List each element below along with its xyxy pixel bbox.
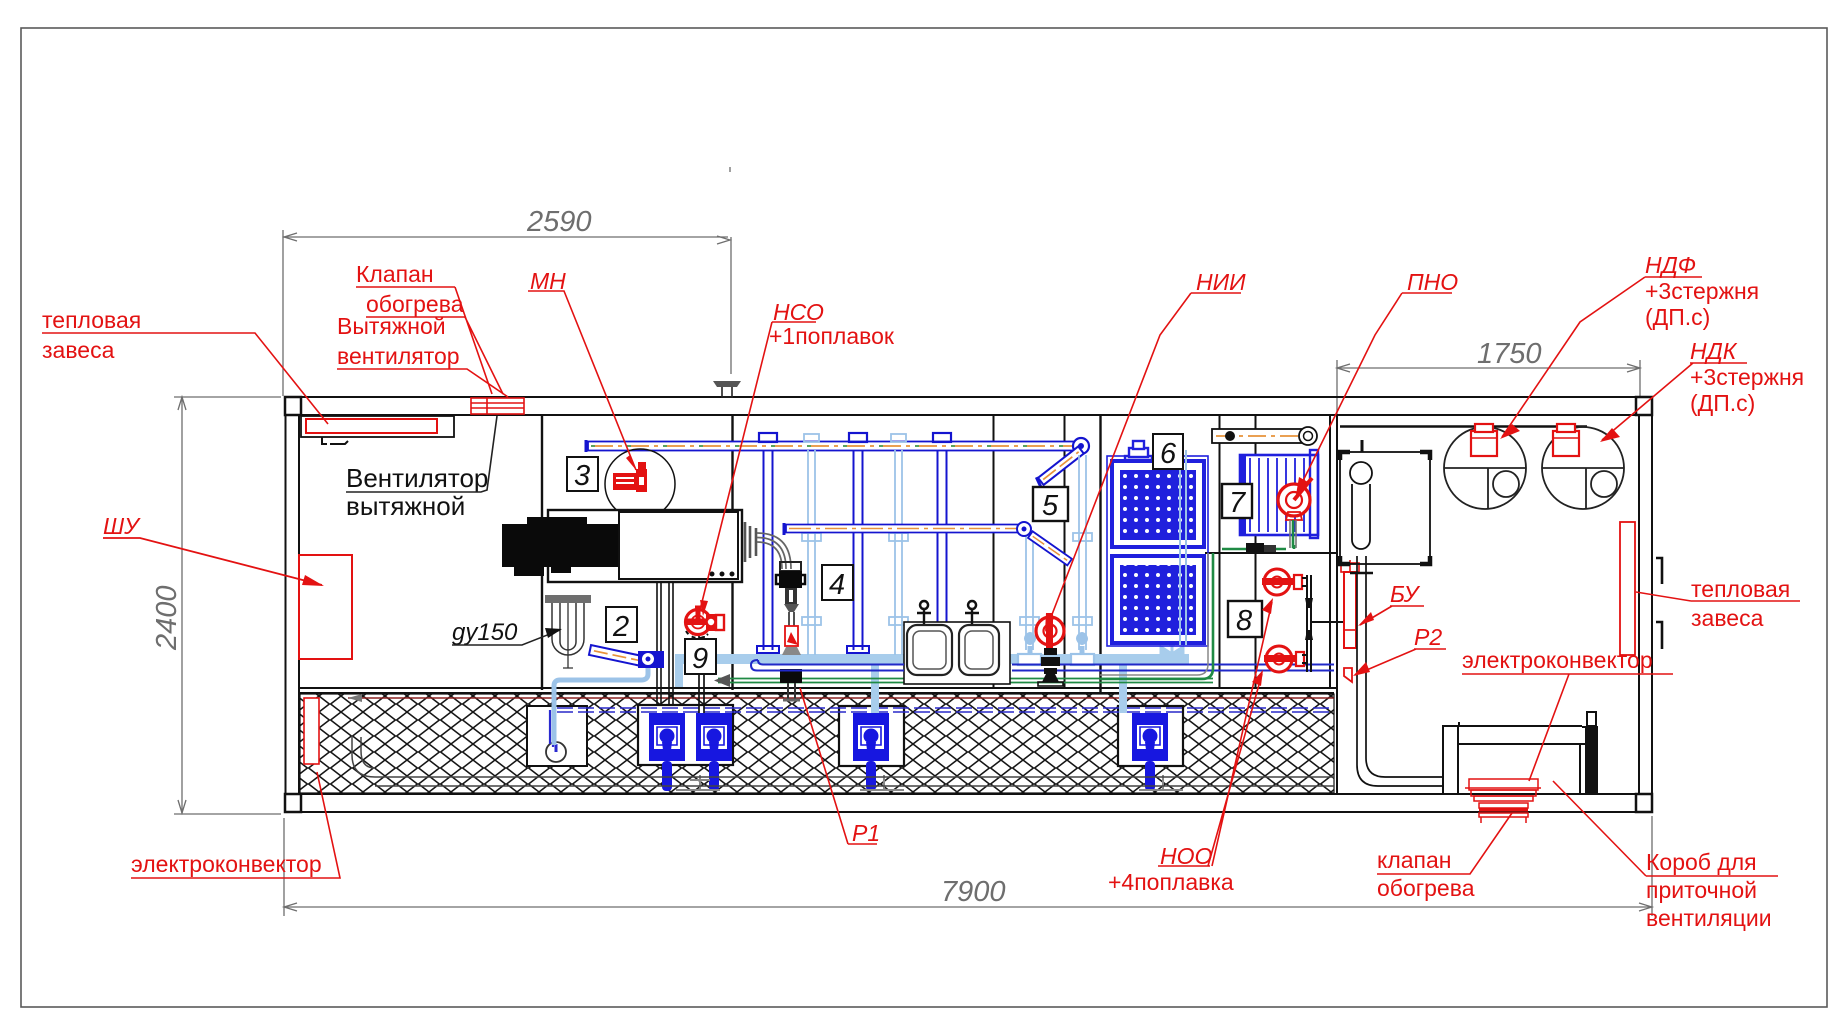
- svg-text:+3стержня: +3стержня: [1690, 364, 1804, 390]
- svg-text:+4поплавка: +4поплавка: [1108, 869, 1234, 895]
- svg-text:завеса: завеса: [42, 337, 115, 363]
- svg-text:приточной: приточной: [1646, 877, 1757, 903]
- svg-text:БУ: БУ: [1390, 581, 1421, 607]
- svg-text:7900: 7900: [941, 876, 1006, 908]
- svg-text:+1поплавок: +1поплавок: [769, 323, 895, 349]
- svg-text:обогрева: обогрева: [1377, 875, 1475, 901]
- svg-text:gy150: gy150: [452, 619, 518, 646]
- svg-text:электроконвектор: электроконвектор: [1462, 647, 1653, 673]
- svg-text:МН: МН: [530, 268, 566, 294]
- svg-text:1750: 1750: [1477, 338, 1542, 370]
- svg-text:9: 9: [692, 643, 708, 675]
- svg-text:5: 5: [1042, 490, 1059, 522]
- svg-text:Вентилятор: Вентилятор: [346, 463, 488, 493]
- svg-text:3: 3: [574, 460, 590, 492]
- svg-text:электроконвектор: электроконвектор: [131, 851, 322, 877]
- svg-text:7: 7: [1229, 487, 1247, 519]
- svg-text:Короб для: Короб для: [1646, 849, 1757, 875]
- svg-text:8: 8: [1236, 605, 1252, 637]
- svg-text:НИИ: НИИ: [1196, 269, 1246, 295]
- svg-text:завеса: завеса: [1691, 605, 1764, 631]
- svg-text:Вытяжной: Вытяжной: [337, 313, 446, 339]
- svg-text:НСО: НСО: [773, 299, 824, 325]
- svg-text:(ДП.с): (ДП.с): [1645, 304, 1710, 330]
- svg-text:6: 6: [1160, 438, 1177, 470]
- svg-text:вентиляции: вентиляции: [1646, 905, 1772, 931]
- svg-text:НОО: НОО: [1160, 843, 1213, 869]
- svg-text:2: 2: [612, 611, 629, 643]
- svg-text:НДФ: НДФ: [1645, 252, 1696, 278]
- svg-text:ШУ: ШУ: [103, 513, 141, 539]
- svg-text:НДК: НДК: [1690, 338, 1738, 364]
- svg-text:клапан: клапан: [1377, 847, 1451, 873]
- svg-text:вытяжной: вытяжной: [346, 491, 465, 521]
- svg-text:тепловая: тепловая: [1691, 576, 1790, 602]
- svg-text:2590: 2590: [526, 206, 592, 238]
- svg-text:Р2: Р2: [1414, 624, 1442, 650]
- svg-text:Клапан: Клапан: [356, 261, 434, 287]
- svg-text:тепловая: тепловая: [42, 307, 141, 333]
- svg-text:4: 4: [829, 569, 845, 601]
- svg-text:Р1: Р1: [852, 820, 880, 846]
- svg-text:(ДП.с): (ДП.с): [1690, 390, 1755, 416]
- svg-text:+3стержня: +3стержня: [1645, 278, 1759, 304]
- svg-text:ПНО: ПНО: [1407, 269, 1458, 295]
- svg-text:2400: 2400: [151, 585, 183, 651]
- svg-text:вентилятор: вентилятор: [337, 343, 460, 369]
